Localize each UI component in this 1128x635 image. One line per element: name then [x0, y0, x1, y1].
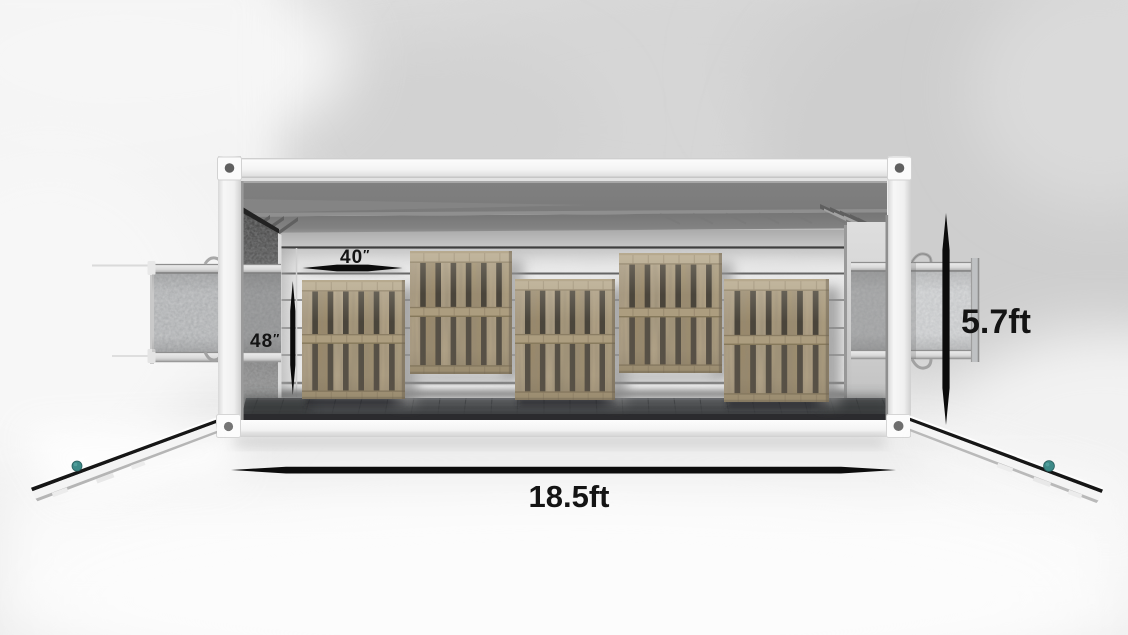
svg-text:18.5ft: 18.5ft [529, 479, 610, 514]
svg-text:5.7ft: 5.7ft [961, 303, 1031, 341]
